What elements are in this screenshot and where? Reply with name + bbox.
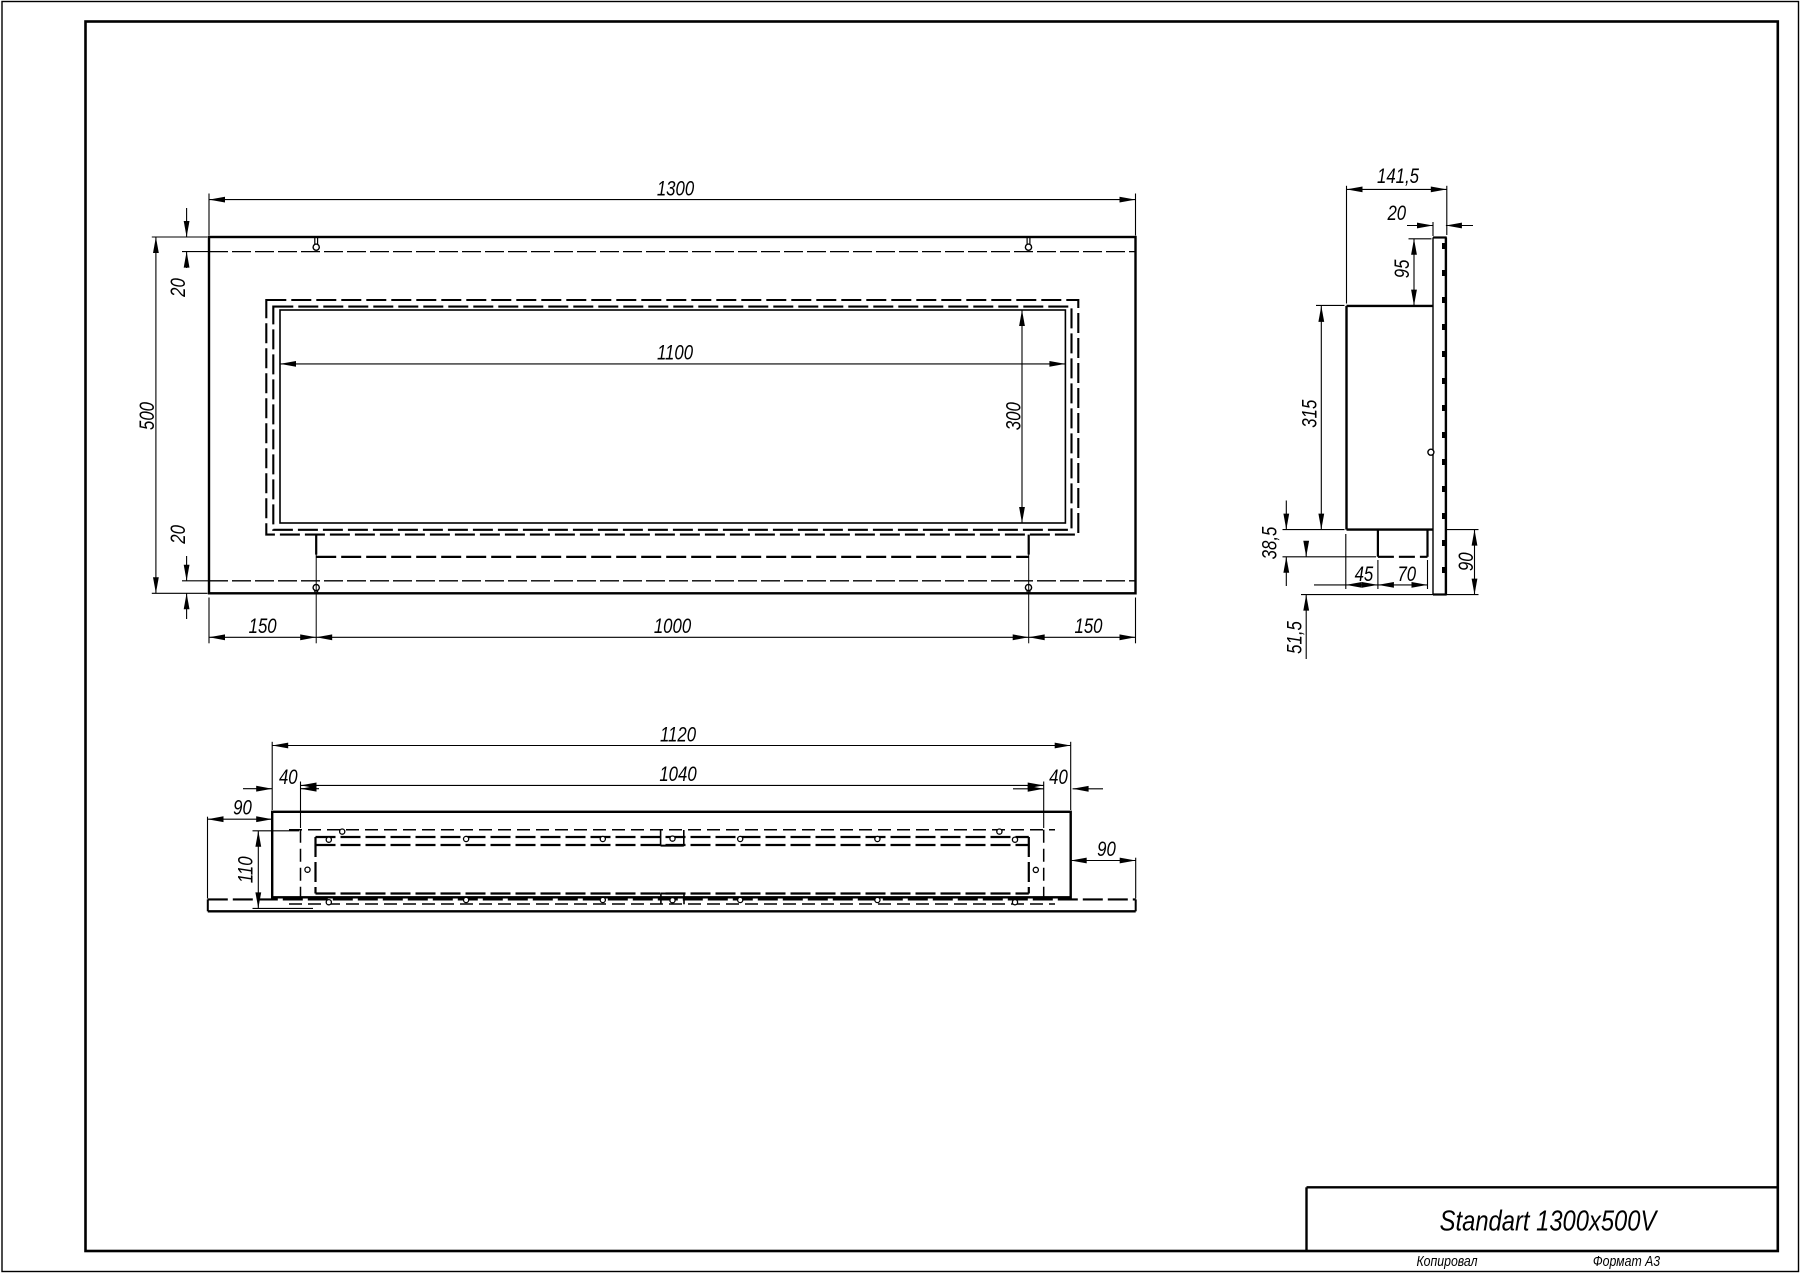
- svg-text:1300: 1300: [657, 178, 695, 201]
- svg-text:40: 40: [279, 766, 298, 789]
- svg-text:150: 150: [249, 615, 277, 638]
- svg-text:95: 95: [1391, 259, 1414, 278]
- svg-text:20: 20: [1387, 202, 1407, 225]
- svg-text:110: 110: [235, 856, 258, 883]
- svg-text:315: 315: [1299, 399, 1322, 427]
- svg-text:500: 500: [137, 402, 160, 430]
- svg-text:141,5: 141,5: [1377, 165, 1419, 188]
- svg-text:1100: 1100: [657, 342, 693, 365]
- svg-text:40: 40: [1049, 766, 1068, 789]
- svg-text:20: 20: [168, 278, 191, 298]
- svg-text:90: 90: [1455, 552, 1478, 571]
- svg-text:1120: 1120: [660, 724, 696, 747]
- svg-text:150: 150: [1074, 615, 1102, 638]
- svg-text:90: 90: [233, 797, 252, 820]
- svg-text:1000: 1000: [654, 615, 692, 638]
- svg-text:1040: 1040: [659, 764, 697, 787]
- svg-text:300: 300: [1003, 402, 1026, 430]
- svg-text:70: 70: [1397, 563, 1416, 586]
- svg-text:51,5: 51,5: [1284, 621, 1307, 654]
- svg-text:38,5: 38,5: [1259, 526, 1282, 559]
- svg-text:20: 20: [168, 525, 191, 545]
- svg-text:Standart 1300x500V: Standart 1300x500V: [1440, 1204, 1659, 1237]
- svg-text:90: 90: [1097, 838, 1116, 861]
- svg-text:Формат А3: Формат А3: [1593, 1253, 1661, 1269]
- svg-text:45: 45: [1355, 563, 1374, 586]
- svg-text:Копировал: Копировал: [1416, 1253, 1477, 1269]
